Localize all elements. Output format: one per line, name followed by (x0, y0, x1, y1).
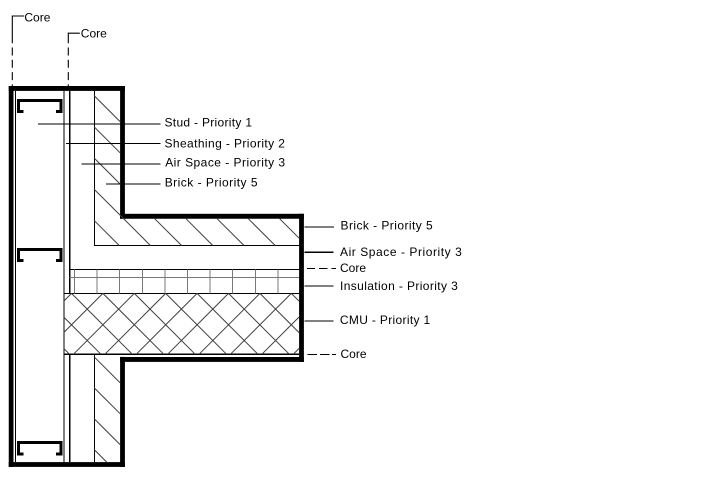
svg-text:Insulation - Priority 3: Insulation - Priority 3 (340, 279, 458, 293)
svg-text:Air Space - Priority 3: Air Space - Priority 3 (340, 245, 462, 259)
svg-text:Brick - Priority 5: Brick - Priority 5 (165, 175, 258, 189)
svg-text:Core: Core (81, 27, 107, 41)
svg-text:CMU - Priority 1: CMU - Priority 1 (340, 313, 431, 327)
svg-text:Core: Core (340, 261, 366, 275)
svg-text:Sheathing - Priority 2: Sheathing - Priority 2 (165, 137, 286, 151)
svg-text:Stud - Priority 1: Stud - Priority 1 (165, 116, 253, 130)
svg-text:Brick - Priority 5: Brick - Priority 5 (341, 219, 434, 233)
svg-text:Air Space - Priority 3: Air Space - Priority 3 (165, 155, 285, 169)
svg-text:Core: Core (341, 347, 367, 361)
svg-text:Core: Core (24, 10, 50, 24)
